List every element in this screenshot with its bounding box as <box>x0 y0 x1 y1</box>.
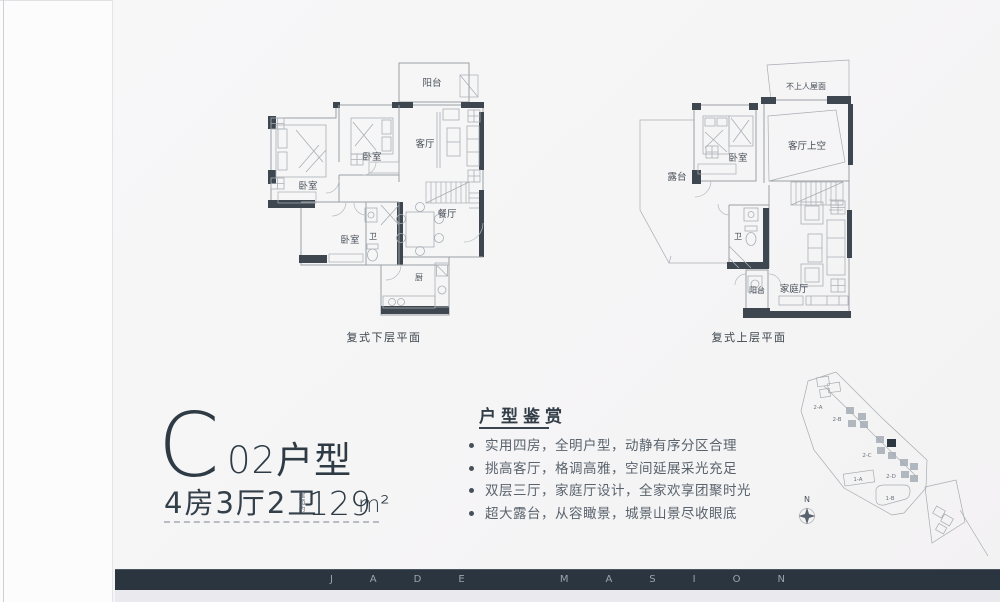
room-label-living: 客厅 <box>415 138 435 150</box>
unit-type-suffix: 户型 <box>276 439 352 482</box>
block-label-1B: 1-B <box>885 496 894 502</box>
list-item: 实用四房，全明户型，动静有序分区合理 <box>469 439 751 453</box>
compass-icon: N <box>799 495 816 525</box>
area-prefix-char: 约 <box>297 506 307 513</box>
stairs <box>426 182 479 208</box>
room-label-bath: 卫 <box>734 232 742 241</box>
site-plan: 2-A 2-B 2-C 2-D 1-A 1-B N <box>784 360 994 572</box>
block-label-2C: 2-C <box>862 453 871 459</box>
area-unit: m² <box>358 494 390 517</box>
room-label-void: 客厅上空 <box>788 140 826 152</box>
block-label-2A: 2-A <box>813 405 822 411</box>
appreciation-title: 户型鉴赏 <box>479 402 567 427</box>
bullet-text: 挑高客厅，格调高雅，空间延展采光充足 <box>485 461 737 477</box>
highlighted-building <box>887 439 896 447</box>
block-2A-buildings <box>817 376 841 397</box>
area-prefix: 建 面 约 <box>297 492 307 513</box>
room-label-bedroom: 卧室 <box>728 152 747 164</box>
list-item: 挑高客厅，格调高雅，空间延展采光充足 <box>469 462 751 476</box>
floor-plan-lower: 阳台 卧室 客厅 卧室 餐厅 卫 卧室 厨 复式下层平面 <box>251 50 501 350</box>
block-label-1A: 1-A <box>853 477 862 483</box>
bullet-text: 超大露台，从容瞰景，城景山景尽收眼底 <box>485 506 737 522</box>
north-label: N <box>804 495 810 504</box>
unit-number: 02 <box>227 439 276 482</box>
room-label-bath: 卫 <box>369 232 377 241</box>
plan-upper-caption: 复式上层平面 <box>712 330 787 344</box>
plan-lower-caption: 复式下层平面 <box>347 330 422 344</box>
bullet-icon <box>469 443 474 448</box>
room-label-bedroom-master: 卧室 <box>298 180 317 192</box>
footer-bottom-strip <box>115 590 1000 602</box>
dining-furniture <box>397 203 444 256</box>
kitchen-furniture <box>383 263 449 308</box>
appreciation-underline <box>479 427 549 429</box>
block-label-2B: 2-B <box>832 417 841 423</box>
brochure-page: { "unit": { "letter": "C", "number": "02… <box>0 0 1000 602</box>
room-label-family: 家庭厅 <box>780 283 809 295</box>
room-label-balcony: 阳台 <box>422 77 441 89</box>
living-furniture <box>437 109 480 182</box>
page-left-edge <box>3 0 4 602</box>
block-label-2D: 2-D <box>886 474 896 480</box>
bullet-icon <box>469 466 474 471</box>
unit-layout-spec: 4房3厅2卫 <box>164 489 318 518</box>
bullet-text: 实用四房，全明户型，动静有序分区合理 <box>485 438 737 454</box>
room-label-dining: 餐厅 <box>437 208 457 220</box>
divider-dashed <box>164 521 379 523</box>
footer-brand-bar: JADE MASION <box>115 569 1000 590</box>
bed-master <box>271 118 326 189</box>
appreciation-list: 实用四房，全明户型，动静有序分区合理 挑高客厅，格调高雅，空间延展采光充足 双层… <box>469 439 751 529</box>
adjacent-parcel <box>925 480 988 556</box>
bullet-text: 双层三厅，家庭厅设计，全家欢享团聚时光 <box>485 483 751 499</box>
room-label-kitchen: 厨 <box>415 273 423 282</box>
room-label-bedroom-3: 卧室 <box>340 234 359 246</box>
bed-upper <box>703 116 753 158</box>
unit-number-type: 02户型 <box>227 442 352 479</box>
room-label-terrace: 露台 <box>667 171 686 183</box>
list-item: 超大露台，从容瞰景，城景山景尽收眼底 <box>469 507 751 521</box>
brochure-content-area: 阳台 卧室 客厅 卧室 餐厅 卫 卧室 厨 复式下层平面 <box>112 0 1000 602</box>
list-item: 双层三厅，家庭厅设计，全家欢享团聚时光 <box>469 484 751 498</box>
bullet-icon <box>469 511 474 516</box>
bullet-icon <box>469 488 474 493</box>
room-label-roof: 不上人屋面 <box>786 82 826 91</box>
floor-plan-upper: 不上人屋面 客厅上空 露台 卧室 卫 阳台 家庭厅 复式上层平面 <box>631 50 881 350</box>
unit-letter: C <box>158 402 219 490</box>
room-label-bedroom-2: 卧室 <box>362 151 381 163</box>
room-label-balcony: 阳台 <box>749 285 765 295</box>
